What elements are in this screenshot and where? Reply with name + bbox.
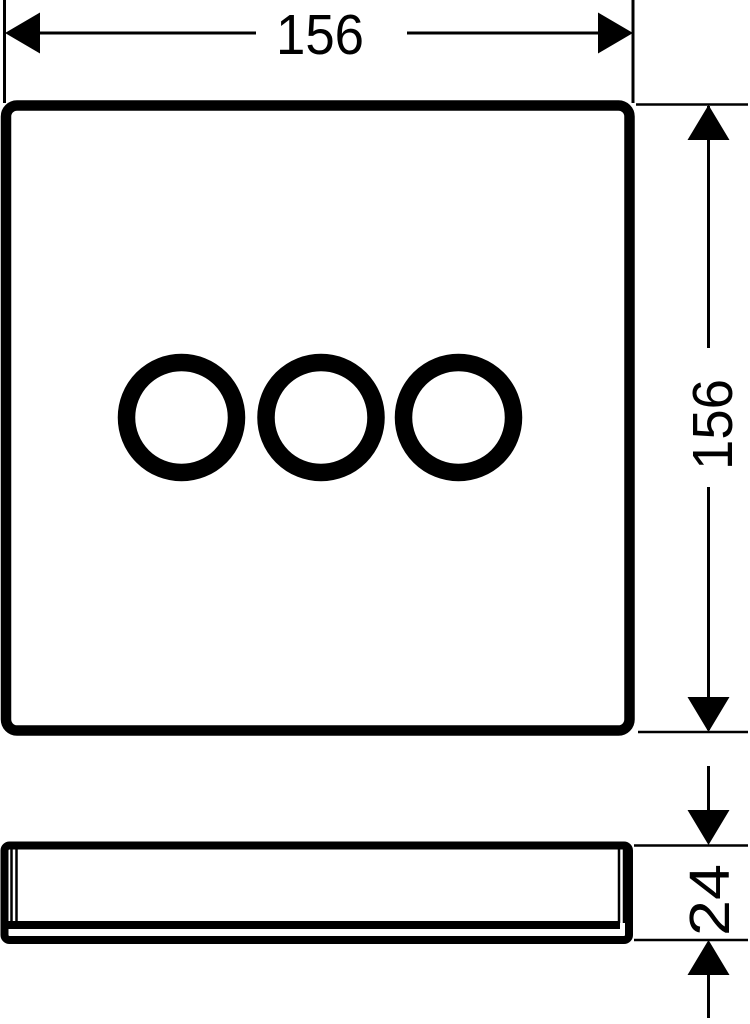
svg-text:156: 156 [276,3,364,67]
svg-text:24: 24 [678,864,742,936]
svg-text:156: 156 [681,379,745,470]
